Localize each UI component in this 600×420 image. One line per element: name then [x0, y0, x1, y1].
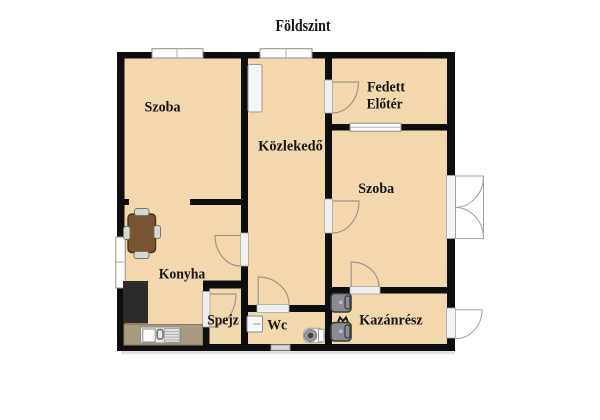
svg-text:Szoba: Szoba	[145, 100, 181, 116]
svg-text:Közlekedő: Közlekedő	[258, 138, 323, 154]
svg-text:Wc: Wc	[267, 317, 287, 333]
svg-text:Spejz: Spejz	[207, 312, 239, 328]
svg-text:Konyha: Konyha	[159, 266, 206, 282]
svg-text:Földszint: Földszint	[276, 16, 331, 35]
svg-text:Kazánrész: Kazánrész	[359, 313, 423, 329]
svg-text:Előtér: Előtér	[367, 97, 403, 113]
svg-text:Szoba: Szoba	[358, 181, 394, 197]
svg-text:Fedett: Fedett	[367, 79, 405, 95]
